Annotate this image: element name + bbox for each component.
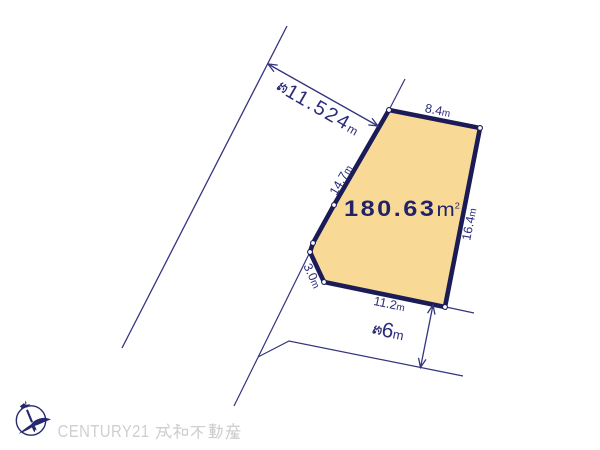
svg-text:6m: 6m — [380, 318, 407, 345]
svg-text:CENTURY21: CENTURY21 — [58, 422, 150, 441]
svg-text:180.63m2: 180.63m2 — [344, 197, 460, 221]
